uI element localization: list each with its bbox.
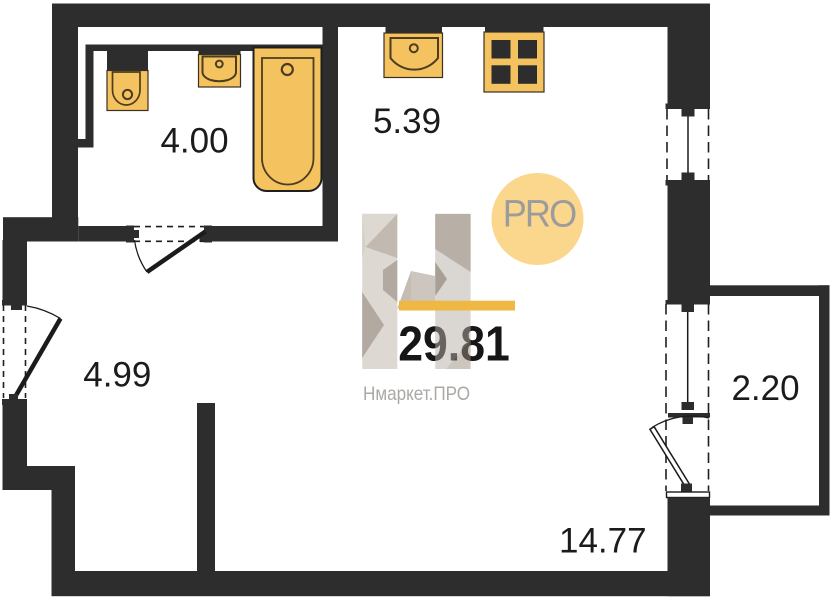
svg-text:4.99: 4.99 xyxy=(83,356,151,395)
svg-text:5.39: 5.39 xyxy=(373,102,441,141)
svg-text:14.77: 14.77 xyxy=(559,522,647,561)
svg-text:PRO: PRO xyxy=(503,192,577,235)
svg-text:Нмаркет.ПРО: Нмаркет.ПРО xyxy=(363,383,470,404)
svg-text:4.00: 4.00 xyxy=(160,122,228,161)
svg-text:2.20: 2.20 xyxy=(731,369,799,408)
